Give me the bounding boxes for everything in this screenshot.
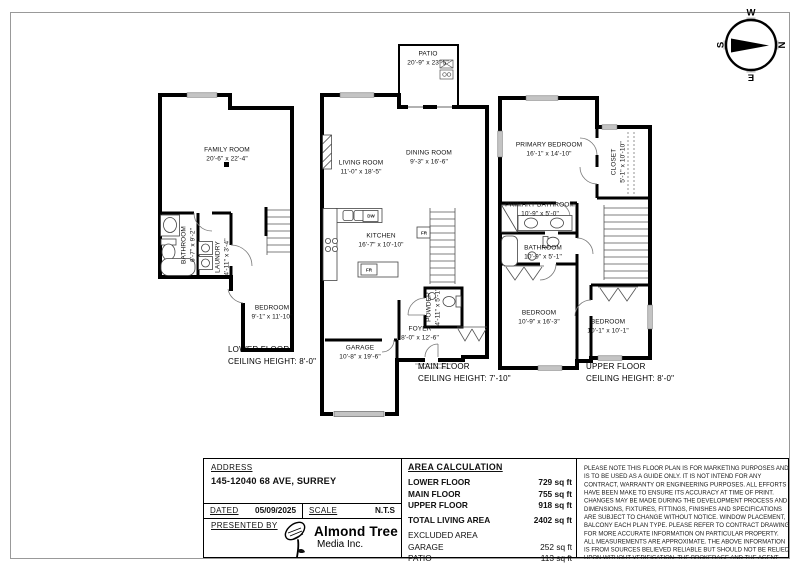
scale-value: N.T.S	[375, 506, 395, 515]
garage-door-icon	[334, 412, 384, 417]
window	[598, 356, 622, 361]
window	[187, 93, 217, 98]
compass-e: E	[748, 72, 754, 83]
area-row-value: 755 sq ft	[538, 489, 572, 499]
room-label-closet: CLOSET 5'-1" x 10'-10"	[609, 141, 627, 182]
area-row-value: 2402 sq ft	[534, 515, 572, 525]
window	[538, 366, 562, 371]
room-label-kitchen: KITCHEN 16'-7" x 10'-10"	[358, 231, 403, 249]
dated-label: DATED	[210, 506, 239, 515]
dated-value: 05/09/2025	[255, 506, 296, 515]
fridge-label: FR	[366, 267, 372, 272]
area-row-label: GARAGE	[408, 542, 444, 552]
dishwasher-label: DW	[367, 214, 375, 219]
door-arc	[382, 340, 394, 352]
cooktop-icon	[325, 238, 330, 243]
window	[340, 93, 374, 98]
lower-floor-title: LOWER FLOOR CEILING HEIGHT: 8'-0"	[228, 344, 316, 369]
room-label-bedroom-right: BEDROOM 10'-1" x 10'-1"	[587, 317, 628, 335]
sink-icon	[164, 218, 177, 233]
address-value: 145-12040 68 AVE, SURREY	[211, 476, 336, 486]
compass-w: W	[747, 8, 756, 19]
room-label-primary-bedroom: PRIMARY BEDROOM 16'-1" x 14'-10"	[516, 140, 582, 158]
presented-by-cell: PRESENTED BY Almond Tree Media Inc.	[204, 518, 401, 559]
closet-doors-icon	[457, 327, 487, 341]
sink-icon	[343, 211, 353, 221]
area-calc-header: AREA CALCULATION	[408, 462, 572, 472]
area-row: EXCLUDED AREA	[408, 530, 572, 540]
ceiling-fixture-icon	[224, 162, 229, 167]
title-block: ADDRESS 145-12040 68 AVE, SURREY DATED 0…	[203, 458, 789, 558]
door-arc	[231, 245, 252, 266]
dated-cell: DATED 05/09/2025	[204, 503, 303, 518]
scale-label: SCALE	[309, 506, 337, 515]
area-calculation: AREA CALCULATION LOWER FLOOR 729 sq ft M…	[408, 462, 572, 565]
door-arc	[408, 298, 425, 315]
door-arc	[580, 138, 597, 155]
presented-by-label: PRESENTED BY	[211, 521, 278, 530]
divider	[401, 459, 402, 557]
area-row: MAIN FLOOR 755 sq ft	[408, 489, 572, 499]
window	[526, 96, 558, 101]
upper-floor-plan	[498, 96, 653, 371]
compass-rose	[724, 18, 779, 73]
door-arc	[580, 167, 597, 184]
floor-plan-page: W N E S FAMILY ROOM 20'-6" x 22'-4" BATH…	[0, 0, 800, 566]
room-label-bathroom-upper: BATHROOM 10'-9" x 5'-1"	[524, 243, 562, 261]
door-arc	[577, 238, 593, 254]
room-label-powder: POWDER 4'-11" x 5'-1"	[424, 288, 442, 325]
address-label: ADDRESS	[211, 463, 252, 472]
sink-icon	[525, 218, 538, 228]
area-row-label: UPPER FLOOR	[408, 500, 468, 510]
room-label-laundry: LAUNDRY 4'-11" x 3'-4"	[213, 238, 231, 275]
area-row-value: 729 sq ft	[538, 477, 572, 487]
toilet-icon	[162, 244, 175, 260]
fridge-label: FR	[421, 230, 427, 235]
disclaimer-cell: PLEASE NOTE THIS FLOOR PLAN IS FOR MARKE…	[576, 459, 789, 559]
scale-cell: SCALE N.T.S	[303, 503, 401, 518]
room-label-garage: GARAGE 10'-8" x 19'-6"	[339, 343, 380, 361]
sink-icon	[551, 218, 564, 228]
toilet-tank-icon	[456, 296, 461, 307]
area-row: GARAGE 252 sq ft	[408, 542, 572, 552]
room-label-bathroom: BATHROOM 6'-7" x 9'-2"	[179, 226, 197, 264]
area-row-value: 252 sq ft	[540, 542, 572, 552]
window	[602, 125, 617, 130]
sink-icon	[354, 211, 364, 221]
fireplace-icon	[323, 135, 332, 169]
window	[498, 131, 503, 157]
room-label-patio: PATIO 20'-9" x 23'-5"	[407, 49, 448, 67]
area-row: PATIO 113 sq ft	[408, 553, 572, 563]
compass-s: S	[716, 42, 727, 48]
area-row-label: EXCLUDED AREA	[408, 530, 478, 540]
counter	[323, 209, 337, 281]
disclaimer-text: PLEASE NOTE THIS FLOOR PLAN IS FOR MARKE…	[584, 464, 789, 559]
area-row-value: 918 sq ft	[538, 500, 572, 510]
address-cell: ADDRESS 145-12040 68 AVE, SURREY	[204, 459, 401, 503]
logo-name: Almond Tree	[314, 524, 398, 539]
area-row-value: 113 sq ft	[541, 553, 572, 563]
stairs-icon	[266, 207, 290, 255]
main-floor-title: MAIN FLOOR CEILING HEIGHT: 7'-10"	[418, 361, 511, 386]
area-row-label: TOTAL LIVING AREA	[408, 515, 490, 525]
room-label-dining-room: DINING ROOM 9'-3" x 16'-6"	[406, 148, 452, 166]
area-row: LOWER FLOOR 729 sq ft	[408, 477, 572, 487]
closet-rod-icon	[628, 132, 634, 196]
door-arc	[228, 289, 243, 303]
stairs-icon	[430, 208, 455, 284]
room-label-bedroom-lower: BEDROOM 9'-1" x 11'-10"	[252, 303, 293, 321]
room-label-primary-bathroom: PRIMARY BATHROOM 10'-9" x 5'-0"	[505, 200, 575, 218]
room-label-bedroom-left: BEDROOM 10'-9" x 16'-3"	[518, 308, 559, 326]
compass-n: N	[776, 42, 787, 49]
room-label-living-room: LIVING ROOM 11'-0" x 18'-5"	[339, 158, 383, 176]
room-label-family-room: FAMILY ROOM 20'-6" x 22'-4"	[204, 145, 250, 163]
area-row-label: MAIN FLOOR	[408, 489, 461, 499]
area-row-label: LOWER FLOOR	[408, 477, 470, 487]
area-row-total: TOTAL LIVING AREA 2402 sq ft	[408, 515, 572, 525]
dated-scale-row: DATED 05/09/2025 SCALE N.T.S	[204, 503, 401, 518]
area-row: UPPER FLOOR 918 sq ft	[408, 500, 572, 510]
logo-leaf-icon	[284, 520, 310, 558]
logo-subname: Media Inc.	[317, 539, 363, 550]
area-row-label: PATIO	[408, 553, 432, 563]
bathtub-icon	[502, 236, 518, 266]
laundry-fixtures	[199, 242, 213, 270]
upper-floor-title: UPPER FLOOR CEILING HEIGHT: 8'-0"	[586, 361, 674, 386]
window	[648, 305, 653, 329]
room-label-foyer: FOYER 8'-0" x 12'-6"	[401, 324, 439, 342]
toilet-icon	[443, 297, 455, 307]
stairs-icon	[604, 205, 648, 280]
